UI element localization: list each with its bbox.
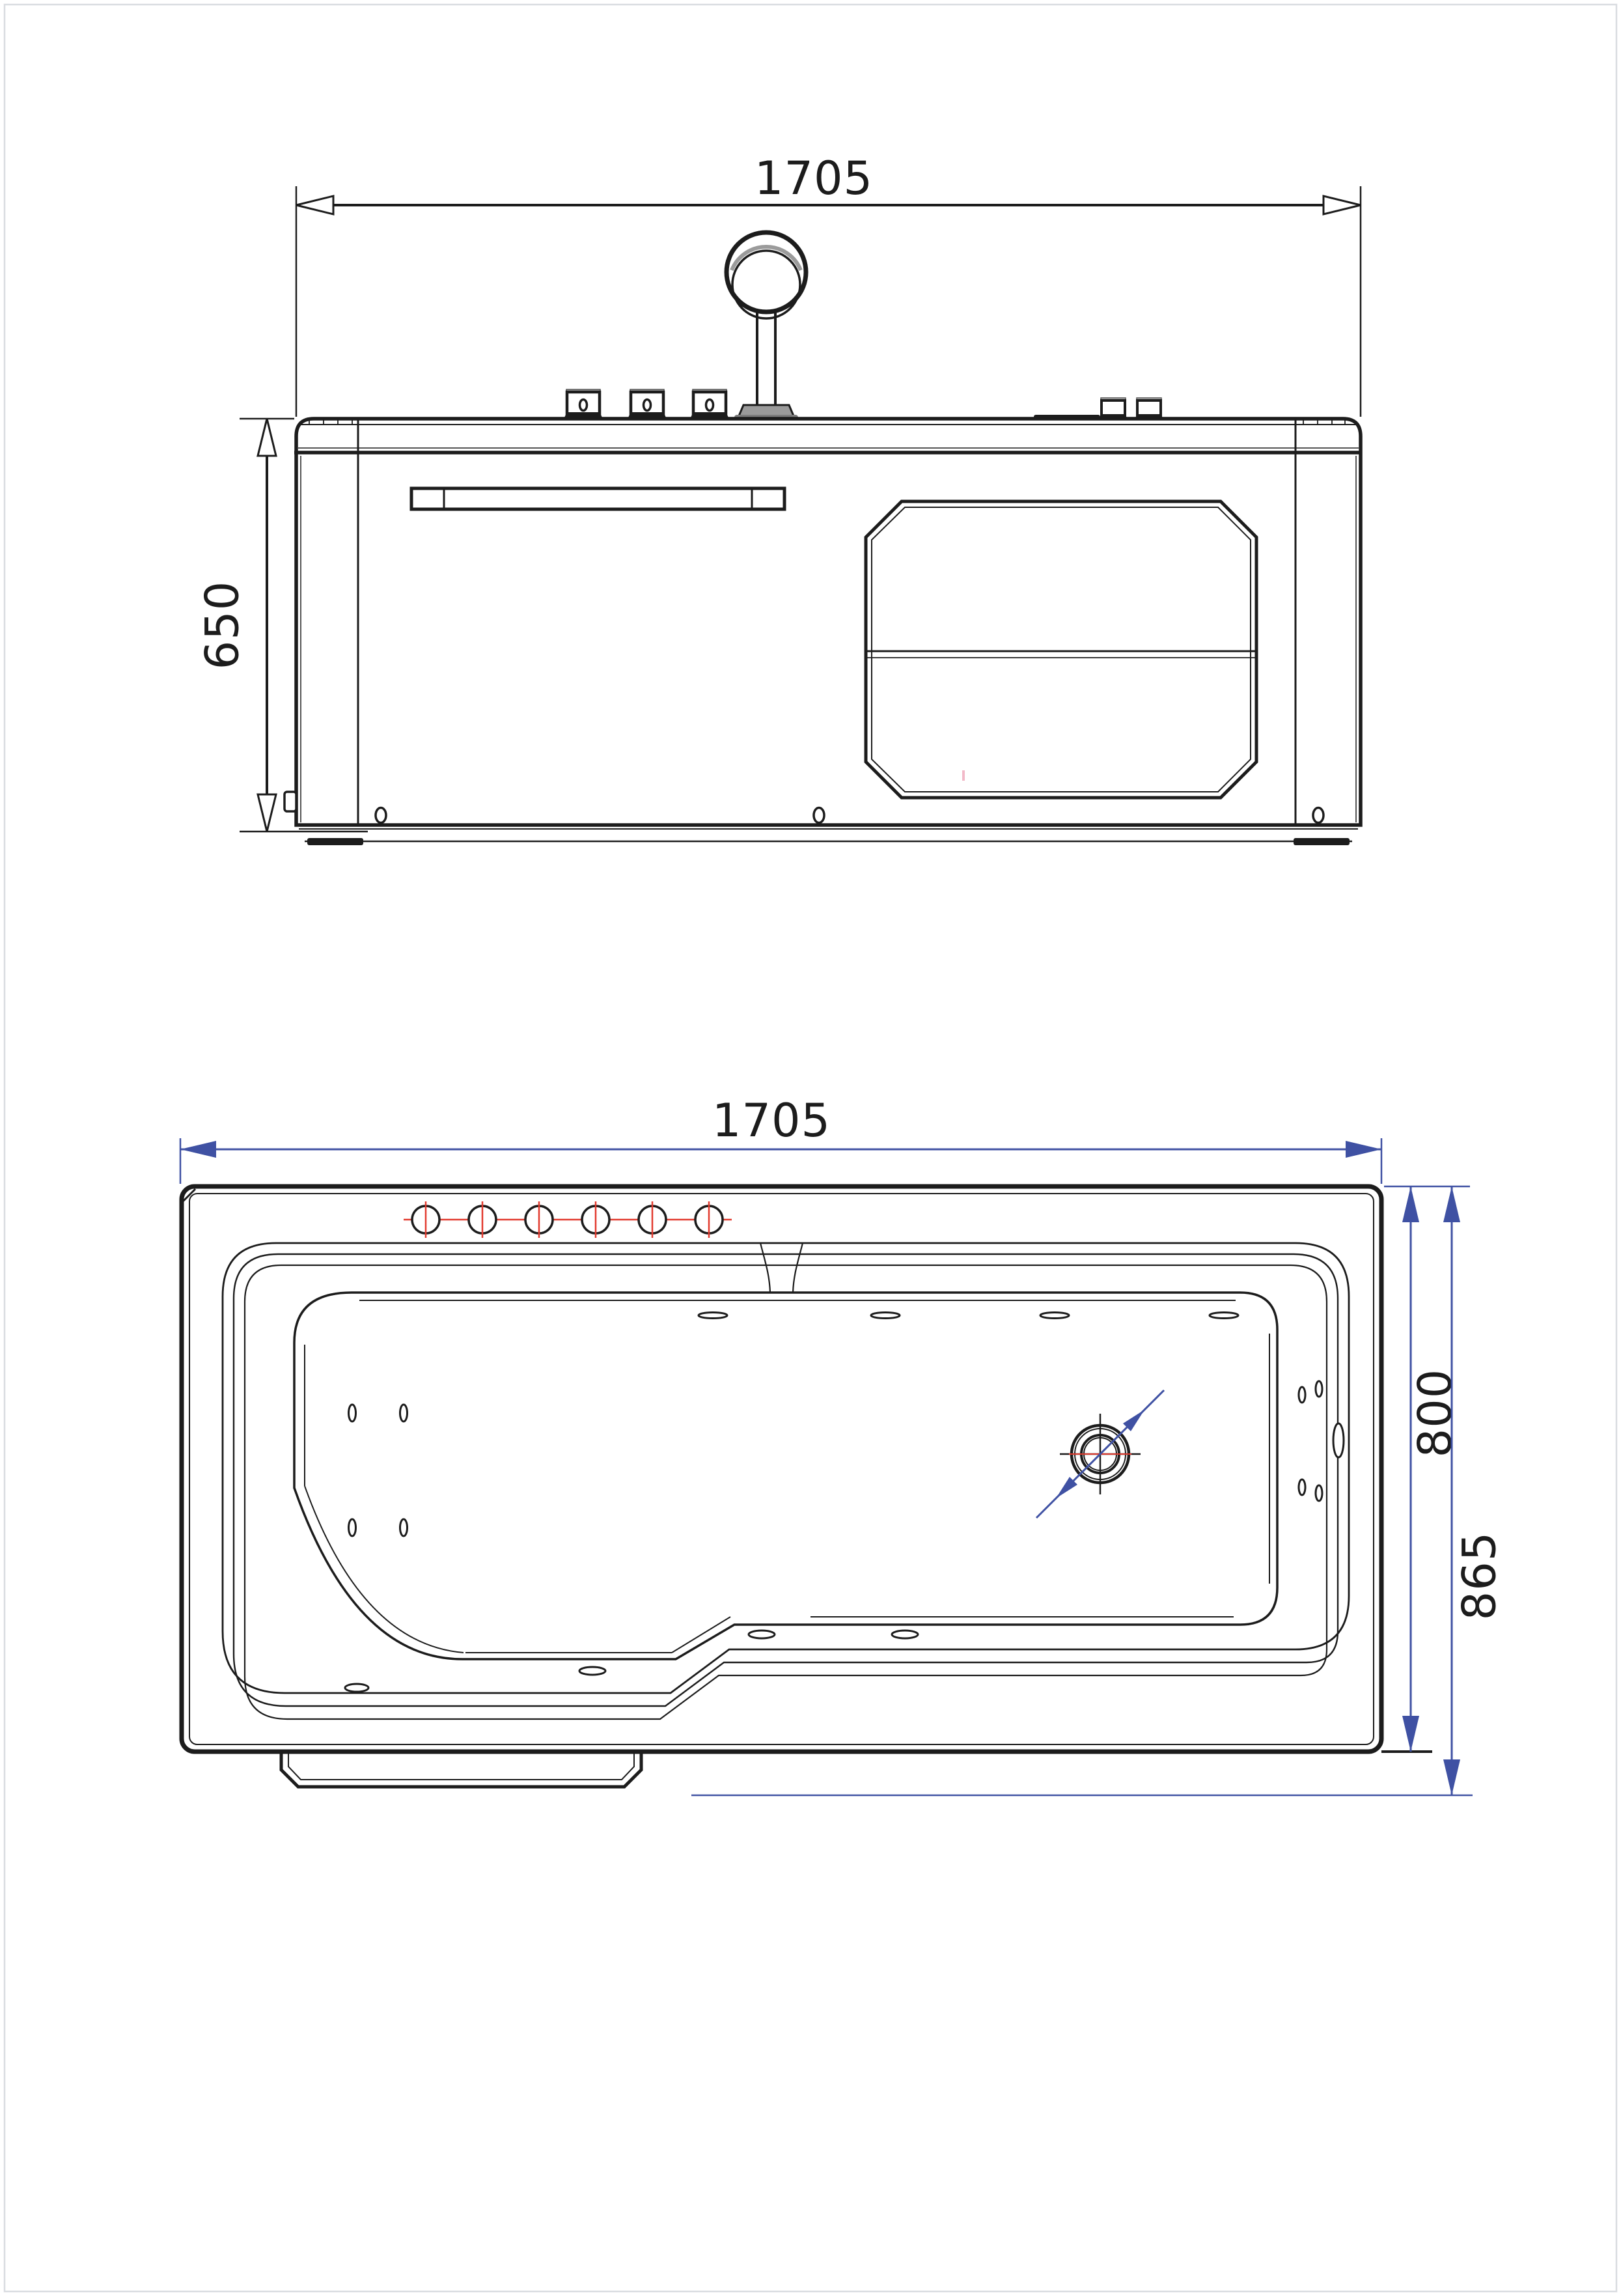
open-arrow-icon	[1323, 196, 1361, 214]
side-jet	[1316, 1381, 1322, 1397]
fitting-oval	[871, 1313, 900, 1319]
plan-depth-865-value: 865	[1453, 1532, 1506, 1621]
foot-pad	[1294, 838, 1350, 845]
knob-hole	[644, 400, 651, 411]
open-arrow-icon	[258, 419, 276, 456]
plan-view: 1705 800 865	[180, 1094, 1506, 1795]
right-deck-controls	[1034, 398, 1164, 420]
deck-knob	[627, 389, 667, 420]
side-jet	[349, 1405, 356, 1421]
knob-hole	[580, 400, 587, 411]
fitting-oval	[345, 1684, 368, 1692]
side-jet	[400, 1405, 408, 1421]
side-jet	[1316, 1485, 1322, 1501]
fitting-oval	[699, 1313, 727, 1319]
open-arrow-icon	[296, 196, 333, 214]
solid-arrow-icon	[1346, 1141, 1381, 1158]
front-width-value: 1705	[755, 152, 873, 205]
deck-knob	[563, 389, 603, 420]
waterfall-slot	[411, 488, 784, 509]
plan-depth-800-dimension: 800	[1381, 1186, 1470, 1752]
diverter-knob	[1098, 398, 1128, 420]
plan-width-value: 1705	[712, 1094, 831, 1147]
fitting-oval	[1040, 1313, 1069, 1319]
diverter-knob	[1134, 398, 1164, 420]
front-height-value: 650	[196, 581, 249, 670]
screw-hole	[376, 808, 386, 823]
side-jet	[1299, 1387, 1305, 1403]
technical-drawing-canvas: 1705 650	[0, 0, 1621, 2296]
pink-artifact	[962, 770, 965, 781]
solid-arrow-icon	[1402, 1186, 1419, 1222]
open-arrow-icon	[258, 794, 276, 832]
fitting-oval	[579, 1667, 605, 1675]
front-elevation-view: 1705 650	[196, 152, 1361, 845]
plan-outline	[182, 1186, 1381, 1752]
solid-arrow-icon	[1443, 1186, 1460, 1222]
shower-head-icon	[727, 232, 806, 312]
plan-width-dimension: 1705	[180, 1094, 1381, 1184]
apron-outline	[281, 1752, 641, 1787]
apron-inner-line	[288, 1752, 634, 1780]
access-panel-outline	[866, 501, 1256, 798]
drawing-page: 1705 650	[0, 0, 1621, 2296]
side-jet	[400, 1519, 408, 1536]
knob-hole	[706, 400, 714, 411]
solid-arrow-icon	[180, 1141, 216, 1158]
plan-outer-shell	[182, 1186, 1381, 1752]
shower-stem	[757, 307, 775, 406]
fitting-oval	[1210, 1313, 1238, 1319]
plan-depth-800-value: 800	[1409, 1369, 1462, 1458]
screw-hole	[1313, 808, 1323, 823]
apron-step	[281, 1752, 641, 1787]
side-jet	[1299, 1479, 1305, 1495]
shower-column	[727, 232, 806, 422]
foot-pad	[307, 838, 363, 845]
solid-arrow-icon	[1443, 1759, 1460, 1795]
fitting-oval	[892, 1631, 918, 1638]
deck-knobs	[563, 389, 730, 420]
fitting-oval	[749, 1631, 775, 1638]
deck-knob	[689, 389, 730, 420]
solid-arrow-icon	[1402, 1716, 1419, 1752]
access-panel	[866, 501, 1256, 798]
screw-hole	[814, 808, 824, 823]
side-jet	[349, 1519, 356, 1536]
slot-outline	[411, 488, 784, 509]
side-clip	[284, 792, 296, 811]
side-jet	[1333, 1423, 1344, 1457]
front-width-dimension: 1705	[296, 152, 1361, 417]
